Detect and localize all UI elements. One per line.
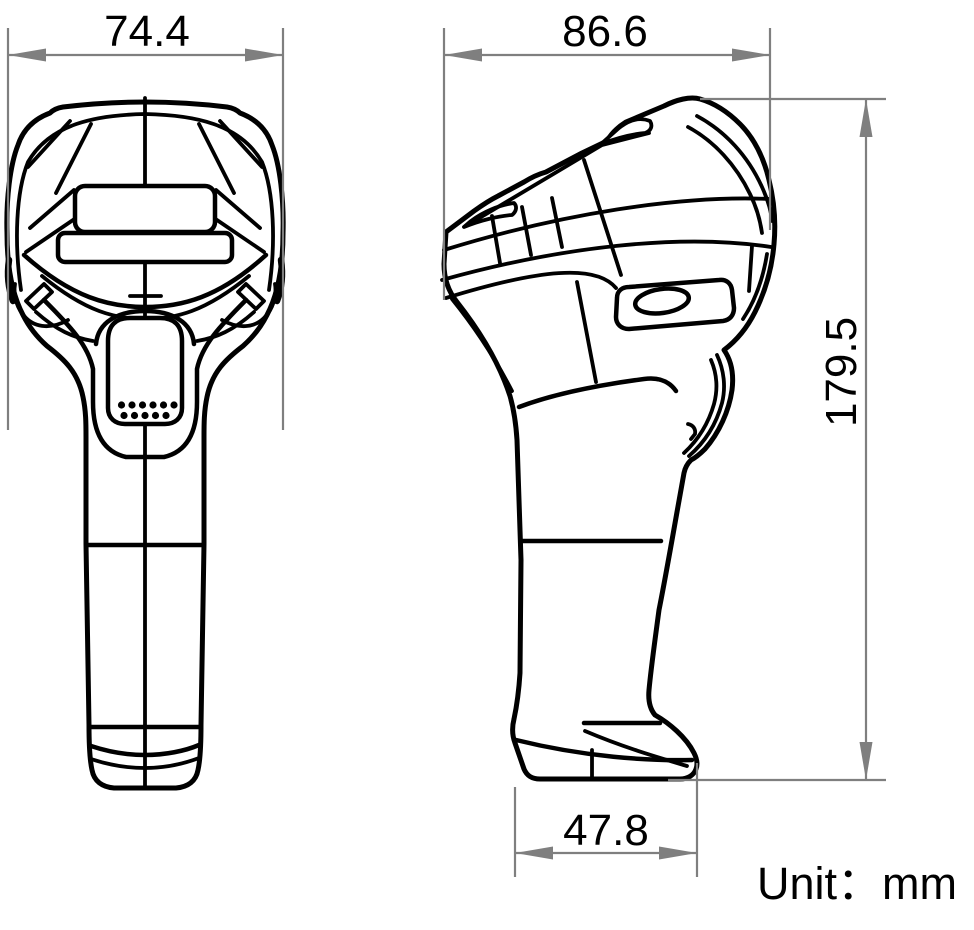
face-seam [452,299,512,391]
arrowhead-left [515,847,553,860]
unit-label: Unit：mm [757,858,957,909]
dimension-label-base-depth: 47.8 [563,806,649,855]
arrowhead-left [444,49,482,62]
scan-window [75,186,215,232]
cross-seam [522,207,531,255]
trigger-nub [688,424,695,439]
arrowhead-top [860,99,873,137]
front-view-drawing [7,98,283,788]
panel-seam [442,242,771,280]
facet-line [220,121,262,167]
arrowhead-bottom [860,742,873,780]
trigger-pad [108,318,182,424]
arrowhead-right [732,49,770,62]
scanner-dimension-drawing: 74.4 86.6 179.5 47.8 Unit：mm [0,0,974,930]
band-seam [688,127,762,233]
front-lower-plate [58,233,232,262]
dimension-label-head-depth: 86.6 [562,7,648,56]
panel-seam [446,273,616,298]
technical-drawing-page: 74.4 86.6 179.5 47.8 Unit：mm [0,0,974,930]
arrowhead-right [659,847,697,860]
facet-line [28,121,70,167]
cross-seam [584,160,621,275]
dimension-label-overall-height: 179.5 [817,317,866,427]
cross-seam [492,216,500,263]
arrowhead-left [8,49,46,62]
arrowhead-right [245,49,283,62]
base-sole [516,740,692,760]
cross-seam [577,282,596,382]
dimension-label-front-width: 74.4 [104,7,190,56]
side-view-drawing [442,98,775,779]
facet-line [199,124,234,193]
cross-seam [749,246,752,291]
facet-line [56,124,91,193]
